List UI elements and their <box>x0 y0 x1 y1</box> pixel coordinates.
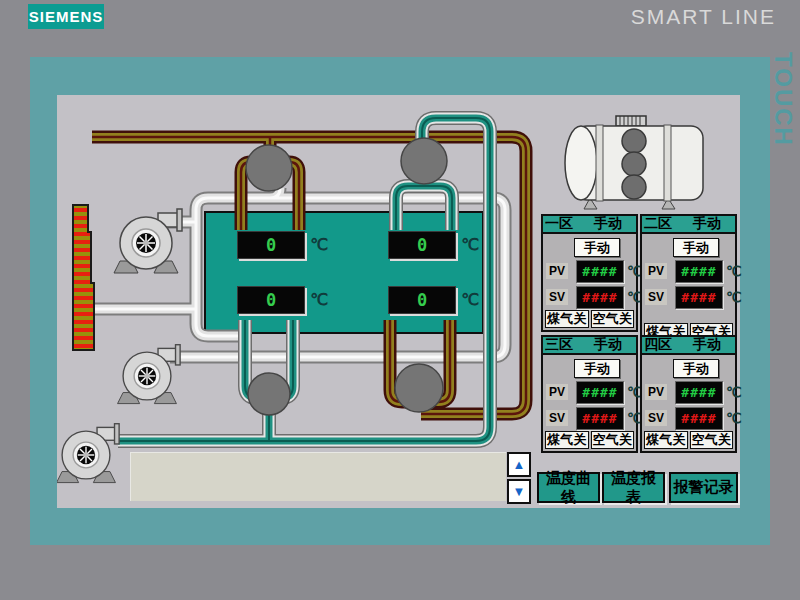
zone-1-sv-label: SV <box>546 289 568 305</box>
blower-pump-icon <box>57 424 119 483</box>
arrow-down-icon: ▼ <box>513 484 526 499</box>
zone-3-pv-display: #### <box>576 381 624 404</box>
zone-4-sv-label: SV <box>645 410 667 426</box>
zone-1-pv-display: #### <box>576 260 624 283</box>
alarm-record-button[interactable]: 报警记录 <box>669 472 738 503</box>
zone-3-header: 三区 手动 <box>543 337 636 355</box>
siemens-logo: SIEMENS <box>28 4 104 29</box>
zone-2-mode-status: 手动 <box>693 215 721 233</box>
zone-2-manual-button[interactable]: 手动 <box>673 238 719 257</box>
zone-2-pv-label: PV <box>645 263 667 279</box>
furnace-temp-unit-2: ℃ <box>461 235 479 255</box>
zone-3-manual-button[interactable]: 手动 <box>574 359 620 378</box>
zone-2-sv-display: #### <box>675 286 723 309</box>
zone-1-mode-status: 手动 <box>594 215 622 233</box>
zone-panel-4: 四区 手动 手动 PV #### ℃ SV #### ℃ 煤气关 空气关 <box>640 335 737 453</box>
zone-4-air-off-button[interactable]: 空气关 <box>690 431 734 449</box>
blower-pump-icon <box>114 209 182 273</box>
furnace-temp-display-3: 0 <box>237 286 305 314</box>
zone-3-gas-off-button[interactable]: 煤气关 <box>545 431 589 449</box>
zone-panel-2: 二区 手动 手动 PV #### ℃ SV #### ℃ 煤气关 空气关 <box>640 214 737 345</box>
zone-4-gas-off-button[interactable]: 煤气关 <box>644 431 688 449</box>
zone-2-sv-unit: ℃ <box>726 289 742 305</box>
zone-3-sv-label: SV <box>546 410 568 426</box>
zone-1-manual-button[interactable]: 手动 <box>574 238 620 257</box>
storage-tank-icon <box>565 116 703 209</box>
touch-label: TOUCH <box>769 52 797 147</box>
furnace-temp-unit-4: ℃ <box>461 290 479 310</box>
zone-1-air-off-button[interactable]: 空气关 <box>591 310 635 328</box>
zone-3-air-off-button[interactable]: 空气关 <box>591 431 635 449</box>
zone-2-sv-label: SV <box>645 289 667 305</box>
zone-4-pv-unit: ℃ <box>726 384 742 400</box>
siemens-logo-text: SIEMENS <box>29 8 104 25</box>
zone-4-sv-unit: ℃ <box>726 410 742 426</box>
zone-3-pv-label: PV <box>546 384 568 400</box>
zone-3-sv-display: #### <box>576 407 624 430</box>
arrow-up-icon: ▲ <box>513 457 526 472</box>
zone-panel-1: 一区 手动 手动 PV #### ℃ SV #### ℃ 煤气关 空气关 <box>541 214 638 332</box>
zone-4-manual-button[interactable]: 手动 <box>673 359 719 378</box>
zone-1-name: 一区 <box>545 215 573 233</box>
zone-panel-3: 三区 手动 手动 PV #### ℃ SV #### ℃ 煤气关 空气关 <box>541 335 638 453</box>
zone-2-name: 二区 <box>644 215 672 233</box>
blower-pump-icon <box>118 345 181 404</box>
zone-4-sv-display: #### <box>675 407 723 430</box>
temperature-report-button[interactable]: 温度报表 <box>602 472 665 503</box>
zone-4-mode-status: 手动 <box>693 336 721 354</box>
hmi-panel: SIEMENS SMART LINE TOUCH <box>0 0 800 600</box>
zone-1-header: 一区 手动 <box>543 216 636 234</box>
status-message-bar <box>130 452 506 501</box>
zone-1-gas-off-button[interactable]: 煤气关 <box>545 310 589 328</box>
zone-3-name: 三区 <box>545 336 573 354</box>
burner-grid-icon <box>73 205 94 350</box>
page-down-button[interactable]: ▼ <box>507 479 531 504</box>
furnace-temp-display-4: 0 <box>388 286 456 314</box>
page-up-button[interactable]: ▲ <box>507 452 531 477</box>
zone-3-mode-status: 手动 <box>594 336 622 354</box>
furnace-temp-display-2: 0 <box>388 231 456 259</box>
zone-2-header: 二区 手动 <box>642 216 735 234</box>
furnace-temp-unit-3: ℃ <box>310 290 328 310</box>
zone-4-name: 四区 <box>644 336 672 354</box>
product-name: SMART LINE <box>600 5 776 29</box>
furnace-temp-display-1: 0 <box>237 231 305 259</box>
zone-4-pv-display: #### <box>675 381 723 404</box>
zone-4-pv-label: PV <box>645 384 667 400</box>
furnace-temp-unit-1: ℃ <box>310 235 328 255</box>
zone-2-pv-unit: ℃ <box>726 263 742 279</box>
zone-2-pv-display: #### <box>675 260 723 283</box>
zone-1-pv-label: PV <box>546 263 568 279</box>
temperature-curve-button[interactable]: 温度曲线 <box>537 472 600 503</box>
zone-4-header: 四区 手动 <box>642 337 735 355</box>
zone-1-sv-display: #### <box>576 286 624 309</box>
